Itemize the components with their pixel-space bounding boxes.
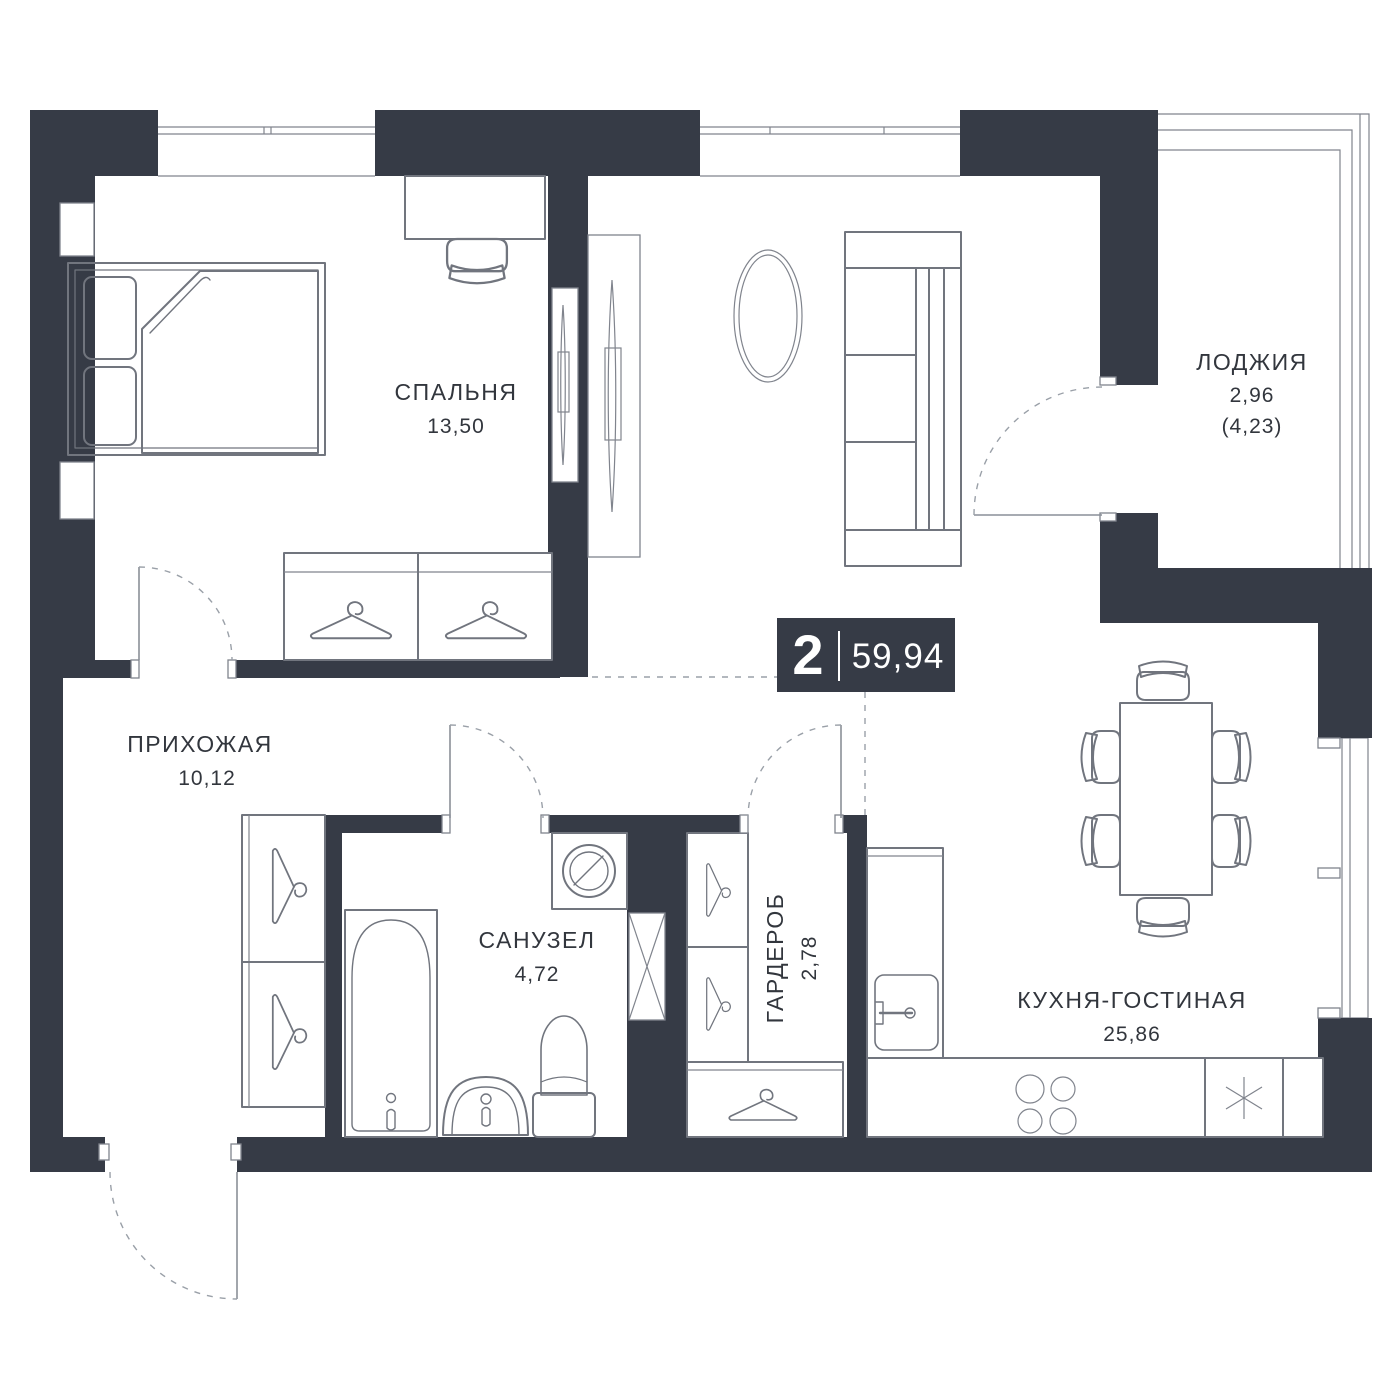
bedroom-area: 13,50 xyxy=(427,415,485,438)
loggia-label: ЛОДЖИЯ xyxy=(1196,349,1307,375)
bathroom-area: 4,72 xyxy=(515,963,560,986)
radiator-niche xyxy=(60,203,94,256)
badge-rooms-count: 2 xyxy=(792,623,823,686)
area-badge: 2 59,94 xyxy=(777,618,955,692)
hallway-wardrobe xyxy=(242,815,325,1107)
hallway-area: 10,12 xyxy=(178,767,236,790)
dining-table xyxy=(1120,703,1212,895)
vent-shaft xyxy=(629,913,665,1020)
kitchen-label: КУХНЯ-ГОСТИНАЯ xyxy=(1017,987,1247,1013)
wardrobe-label: ГАРДЕРОБ xyxy=(762,893,788,1024)
wardrobe-area: 2,78 xyxy=(798,936,821,981)
bathroom-label: САНУЗЕЛ xyxy=(479,927,596,953)
loggia-area: 2,96 xyxy=(1230,384,1275,407)
badge-total-area: 59,94 xyxy=(852,637,945,676)
radiator-niche xyxy=(60,462,94,519)
bedroom-wardrobe xyxy=(284,553,552,660)
bedroom-tv xyxy=(552,288,578,482)
bedroom-label: СПАЛЬНЯ xyxy=(395,379,518,405)
floor-plan: 2 59,94 СПАЛЬНЯ 13,50 ЛОДЖИЯ 2,96 (4,23)… xyxy=(0,0,1400,1400)
hallway-label: ПРИХОЖАЯ xyxy=(127,731,273,757)
kitchen-counter-left xyxy=(867,848,943,1058)
washing-machine xyxy=(552,833,627,909)
kitchen-area: 25,86 xyxy=(1103,1023,1161,1046)
kitchen-counter-bottom xyxy=(867,1058,1323,1137)
living-tv xyxy=(588,235,640,557)
background xyxy=(0,0,1400,1400)
floor-plan-page: 2 59,94 СПАЛЬНЯ 13,50 ЛОДЖИЯ 2,96 (4,23)… xyxy=(0,0,1400,1400)
desk xyxy=(405,176,545,239)
loggia-area-alt: (4,23) xyxy=(1222,415,1283,438)
